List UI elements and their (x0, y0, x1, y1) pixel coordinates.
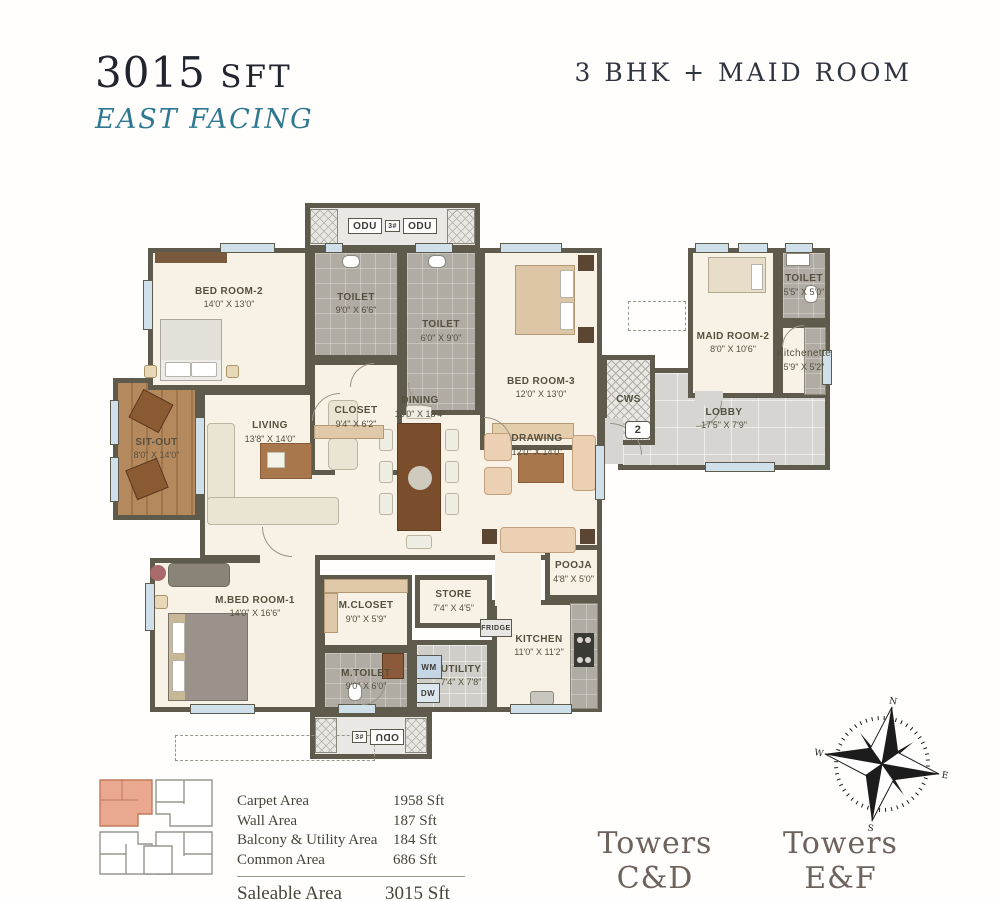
odu-count-box: 3# (385, 220, 400, 232)
living-tag: LIVING13'8" X 14'0" (220, 420, 320, 445)
room-label: LOBBY (701, 407, 747, 420)
louver-hatch (405, 718, 427, 753)
washing-machine-box: WM (416, 655, 442, 679)
stove-icon (574, 633, 594, 667)
wc-icon (342, 255, 360, 268)
bed-icon (160, 319, 222, 381)
area-row: Carpet Area1958 Sft (237, 792, 465, 812)
compass-rose: N E S W (812, 694, 952, 834)
louver-hatch (310, 209, 338, 244)
window (143, 280, 153, 330)
armchair-icon (484, 467, 512, 495)
odu-count-box: 3# (352, 731, 367, 743)
odu-box: ODU (370, 729, 404, 745)
window (325, 243, 343, 253)
tower-name: Towers C&D (560, 826, 750, 896)
room-dims: 5'5" X 5'0" (784, 287, 825, 298)
room-label: M.CLOSET (339, 600, 394, 613)
bedpost-icon (578, 255, 594, 271)
room-dims: 8'0" X 14'0" (134, 450, 180, 461)
room-label: TOILET (421, 319, 462, 332)
key-plan (92, 770, 226, 884)
floor-plan: LOBBY17'5" X 7'9" SIT-OUT8'0" X 14'0" BE… (110, 195, 840, 770)
nightstand-icon (226, 365, 239, 378)
bed-icon (515, 265, 575, 335)
room-label: POOJA (553, 560, 594, 573)
dining-table-icon (397, 423, 441, 531)
dining-chair-icon (445, 493, 459, 515)
room-dims: 14'0" X 13'0" (195, 299, 263, 310)
room-pooja: POOJA4'8" X 5'0" (545, 545, 602, 600)
unit-type-label: 3 BHK + MAID ROOM (575, 58, 912, 87)
dining-chair-icon (445, 461, 459, 483)
window (705, 462, 775, 472)
brochure-page: 3015 SFT EAST FACING 3 BHK + MAID ROOM L… (0, 0, 1001, 901)
odu-box: ODU (403, 218, 437, 234)
window (110, 400, 119, 445)
room-label: UTILITY (441, 664, 482, 677)
page-title: 3015 SFT (95, 48, 293, 97)
window (500, 243, 562, 253)
room-label: BED ROOM-3 (507, 376, 575, 389)
bed-icon (168, 613, 248, 701)
window (220, 243, 275, 253)
window (510, 704, 572, 714)
room-dims: 5'9" X 5'2" (777, 362, 831, 373)
dining-chair-icon (445, 429, 459, 451)
room-dims: 6'0" X 9'0" (421, 333, 462, 344)
room-dims: 9'0" X 6'6" (336, 305, 377, 316)
window (738, 243, 768, 253)
room-dims: 12'0" X 13'0" (507, 389, 575, 400)
room-dims: 9'0" X 6'0" (341, 681, 391, 692)
room-label: LIVING (220, 420, 320, 433)
dresser-icon (155, 252, 227, 263)
compass-n: N (888, 696, 898, 707)
keyplan-highlighted-unit (100, 780, 152, 826)
window (190, 704, 255, 714)
opening (495, 552, 541, 606)
nightstand-icon (154, 595, 168, 609)
unit-number-badge: 2 (625, 421, 651, 439)
room-label: KITCHEN (514, 634, 564, 647)
wc-icon (428, 255, 446, 268)
sink-icon (530, 691, 554, 705)
room-dims: 7'4" X 4'5" (433, 603, 474, 614)
room-dims: 9'4" X 6'2" (335, 419, 378, 430)
louver-hatch (447, 209, 475, 244)
area-total-row: Saleable Area3015 Sft (237, 876, 465, 901)
tower-cd: Towers C&D Crimson & Dandelion (560, 826, 750, 901)
sofa-icon (168, 563, 230, 587)
side-table-icon (482, 529, 497, 544)
sofa-icon (207, 497, 339, 525)
window (595, 445, 605, 500)
louver-hatch (315, 718, 337, 753)
room-label: DRAWING (482, 433, 592, 446)
room-label: TOILET (336, 292, 377, 305)
room-dims: 13'8" X 14'0" (220, 434, 320, 445)
side-table-icon (580, 529, 595, 544)
window (415, 243, 453, 253)
room-label: MAID ROOM-2 (697, 331, 770, 344)
area-row: Wall Area187 Sft (237, 812, 465, 832)
compass-s: S (867, 824, 875, 834)
sliding-door (195, 417, 205, 495)
room-label: M.BED ROOM-1 (215, 595, 295, 608)
bed-icon (708, 257, 766, 293)
nightstand-icon (144, 365, 157, 378)
room-label: Kitchenette (777, 348, 831, 361)
coffee-table-icon (260, 443, 312, 479)
compass-e: E (941, 771, 949, 782)
room-dims: 14'0" X 16'6" (215, 608, 295, 619)
window (110, 457, 119, 502)
window (785, 243, 813, 253)
room-dims: 12'0" X 14'0" (482, 447, 592, 458)
room-label: TOILET (784, 273, 825, 286)
bedpost-icon (578, 327, 594, 343)
plant-icon (150, 565, 166, 581)
fridge-box: FRIDGE (480, 619, 512, 637)
room-label: DINING (360, 395, 480, 408)
dashed-projection (175, 735, 375, 761)
area-row: Common Area686 Sft (237, 851, 465, 871)
dishwasher-box: DW (416, 683, 440, 703)
basin-icon (786, 253, 810, 266)
area-statement: Carpet Area1958 Sft Wall Area187 Sft Bal… (237, 792, 465, 901)
cws-label: CWS (616, 394, 641, 407)
room-dims: 8'0" X 10'6" (697, 344, 770, 355)
room-dims: 9'0" X 5'9" (339, 614, 394, 625)
room-dims: 17'5" X 7'9" (701, 420, 747, 431)
dining-tag: DINING13'0" X 18'4" (360, 395, 480, 420)
room-dims: 4'8" X 5'0" (553, 574, 594, 585)
room-label: M.TOILET (341, 668, 391, 681)
drawing-tag: DRAWING12'0" X 14'0" (482, 433, 592, 458)
room-label: BED ROOM-2 (195, 286, 263, 299)
window (338, 704, 376, 714)
window (695, 243, 729, 253)
room-dims: 13'0" X 18'4" (360, 409, 480, 420)
dining-chair-icon (406, 535, 432, 549)
window (145, 583, 155, 631)
wardrobe-icon (324, 579, 408, 593)
armchair-icon (328, 438, 358, 470)
area-row: Balcony & Utility Area184 Sft (237, 831, 465, 851)
sofa-icon (500, 527, 576, 553)
dining-chair-icon (379, 461, 393, 483)
room-dims: 11'0" X 11'2" (514, 647, 564, 658)
tower-ef: Towers E&F Ember & Fedora (748, 826, 933, 901)
wardrobe-icon (324, 593, 338, 633)
room-label: SIT-OUT (134, 437, 180, 450)
area-value: 3015 (95, 48, 206, 97)
dashed-projection (628, 301, 686, 331)
room-label: STORE (433, 589, 474, 602)
dining-chair-icon (379, 493, 393, 515)
area-unit: SFT (220, 59, 292, 95)
room-dims: 7'4" X 7'8" (441, 677, 482, 688)
tower-name: Towers E&F (748, 826, 933, 896)
facing-label: EAST FACING (95, 104, 314, 135)
odu-box: ODU (348, 218, 382, 234)
compass-w: W (813, 748, 825, 760)
